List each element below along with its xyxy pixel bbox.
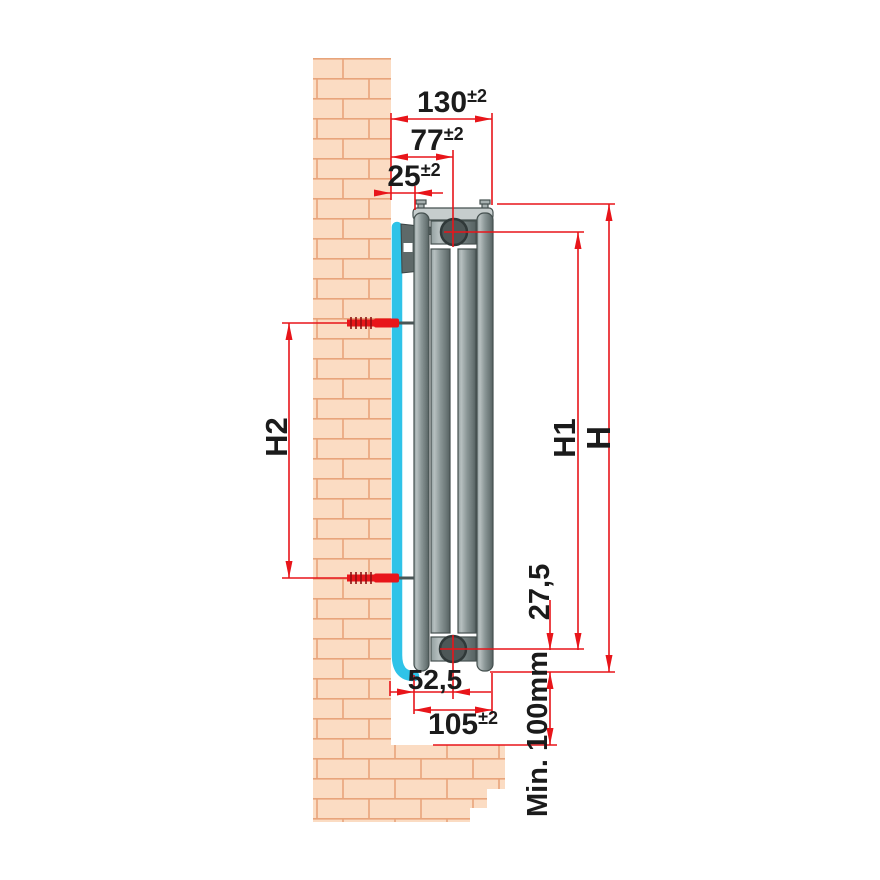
diagram-canvas: 130±2 77±2 25±2 H2 H H1 27 [0,0,880,880]
arrowhead [547,633,554,650]
radiator-installation-diagram: 130±2 77±2 25±2 H2 H H1 27 [0,0,880,880]
dim-52-5-label: 52,5 [408,664,463,695]
dim-h1-label: H1 [547,418,582,458]
arrowhead [575,232,582,249]
arrowhead [606,204,613,221]
grille-clip-left-cap [416,200,426,204]
brick-wall [313,58,391,822]
arrowhead [391,116,408,123]
dim-h2-label: H2 [259,417,294,457]
screw-body [374,574,399,583]
front-panel [477,213,493,671]
bracket-notch [404,243,413,252]
dim-130-label: 130±2 [417,86,487,119]
radiator [413,200,493,671]
convector-fin-right [458,249,476,633]
arrowhead [606,655,613,672]
grille-clip-right-cap [480,200,490,204]
back-panel [414,213,429,671]
arrowhead [286,323,293,340]
screw-body [374,319,399,328]
arrowhead [475,116,492,123]
dim-27-5-label: 27,5 [524,564,556,620]
arrowhead [575,633,582,650]
dim-h-label: H [580,426,617,450]
arrowhead [286,561,293,578]
dim-25-label: 25±2 [387,160,440,193]
dim-105-label: 105±2 [428,708,498,741]
convector-fin-left [431,249,450,633]
brick-floor [391,745,505,822]
dim-77-label: 77±2 [410,124,463,157]
dim-min-100mm-label: Min. 100mm [522,651,554,817]
mounting-rail [397,227,414,676]
